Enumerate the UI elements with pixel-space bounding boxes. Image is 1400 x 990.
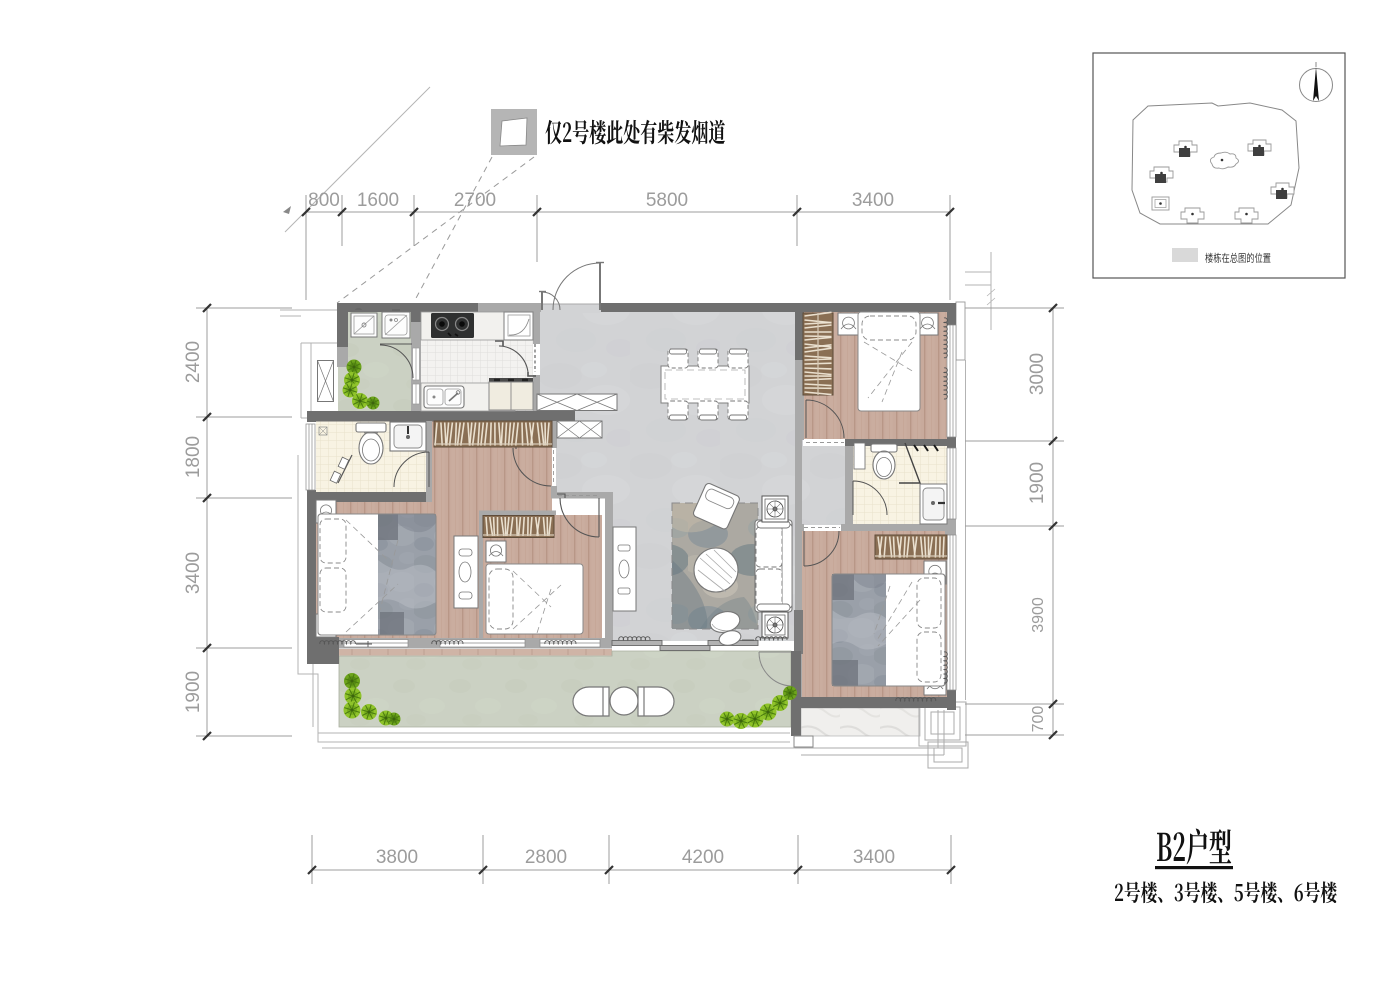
svg-text:3400: 3400	[183, 552, 204, 594]
svg-text:1900: 1900	[1027, 462, 1048, 504]
svg-text:3000: 3000	[1027, 353, 1048, 395]
svg-text:4200: 4200	[682, 847, 724, 868]
svg-text:2800: 2800	[525, 847, 567, 868]
svg-text:3400: 3400	[853, 847, 895, 868]
svg-text:3900: 3900	[1030, 597, 1047, 633]
svg-text:5800: 5800	[646, 190, 688, 211]
svg-text:2700: 2700	[454, 190, 496, 211]
svg-text:1600: 1600	[357, 190, 399, 211]
svg-text:1800: 1800	[183, 436, 204, 478]
svg-text:1900: 1900	[183, 671, 204, 713]
svg-text:800: 800	[308, 190, 340, 211]
svg-text:3800: 3800	[376, 847, 418, 868]
svg-text:3400: 3400	[852, 190, 894, 211]
svg-text:700: 700	[1030, 706, 1047, 733]
svg-text:2400: 2400	[183, 341, 204, 383]
